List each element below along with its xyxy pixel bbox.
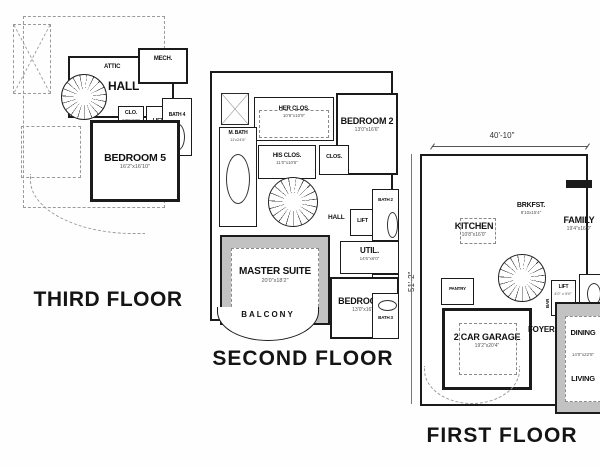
room-label: CLO. bbox=[119, 111, 143, 117]
cross-lines-icon bbox=[14, 25, 50, 93]
room-label: HER CLOS. bbox=[255, 106, 333, 112]
bath3-room: BATH 3 bbox=[372, 293, 399, 339]
room-label: HIS CLOS. bbox=[259, 153, 315, 159]
roof-deck-crossed-area bbox=[13, 24, 51, 94]
room-dims: 14'0"x22'8" bbox=[566, 353, 600, 358]
rug-outline-dashed: DINING 14'0"x22'8" LIVING bbox=[565, 316, 600, 402]
rug-outline-dashed: MASTER SUITE 20'0"x18'2" bbox=[231, 248, 319, 312]
spiral-staircase-icon bbox=[268, 177, 318, 227]
dimension-line bbox=[432, 146, 588, 147]
room-label: BEDROOM 2 bbox=[338, 117, 396, 126]
first-floor-plan: 40'-10" 51'-2" KITCHEN 10'8"x16'0" BRKFS… bbox=[404, 130, 600, 456]
spiral-staircase-icon bbox=[498, 254, 546, 302]
room-dims: 11'x24'6" bbox=[220, 138, 256, 142]
closet-room: CLOS. bbox=[319, 145, 349, 175]
room-label: DINING bbox=[566, 329, 600, 337]
floor-plan-sheet: ATTIC HALL MECH. CLO. 5'0"x6'0" LIFT BAT… bbox=[0, 0, 600, 466]
floor-title: FIRST FLOOR bbox=[404, 424, 600, 448]
room-label: LIVING bbox=[566, 375, 600, 383]
exterior-walls: HER CLOS. 10'6"x10'9" BEDROOM 2 13'0"x16… bbox=[210, 71, 393, 321]
floor-title: THIRD FLOOR bbox=[8, 288, 208, 312]
room-dims: 11'0"x10'6" bbox=[259, 161, 315, 166]
breakfast-room: BRKFST. 8'10x15'4" bbox=[508, 188, 554, 244]
room-label: CLOS. bbox=[320, 155, 348, 161]
dining-living-room: DINING 14'0"x22'8" LIVING bbox=[555, 302, 600, 414]
pantry-room: PANTRY bbox=[441, 278, 474, 305]
room-label: BRKFST. bbox=[508, 202, 554, 209]
room-label: BAR bbox=[546, 299, 551, 308]
floor-title: SECOND FLOOR bbox=[205, 347, 401, 371]
room-label: M. BATH bbox=[220, 131, 256, 136]
utility-room: UTIL. 14'6"x6'0" bbox=[340, 241, 399, 274]
room-label: LIFT bbox=[351, 219, 374, 225]
overall-width-dimension: 40'-10" bbox=[404, 132, 600, 140]
dimension-tick bbox=[585, 143, 590, 149]
roof-area-dashed bbox=[21, 126, 81, 178]
room-label: HALL bbox=[328, 215, 345, 222]
mech-room: MECH. bbox=[138, 48, 188, 84]
room-label: ATTIC bbox=[104, 64, 120, 70]
room-dims: 19'4"x16'0" bbox=[554, 227, 600, 232]
cross-lines-icon bbox=[222, 94, 248, 124]
room-label: BATH 4 bbox=[163, 113, 191, 118]
overall-depth-dimension: 51'-2" bbox=[408, 272, 416, 292]
room-dims: 10'6"x10'9" bbox=[255, 114, 333, 119]
room-label: LIFT bbox=[552, 285, 575, 290]
room-dims: 20'0"x18'2" bbox=[232, 279, 318, 285]
balcony-area: BALCONY bbox=[217, 307, 319, 341]
dimension-line-vertical bbox=[411, 154, 412, 404]
room-label: MASTER SUITE bbox=[232, 267, 318, 278]
room-dims: 13'0"x16'6" bbox=[338, 128, 396, 133]
room-label: UTIL. bbox=[341, 247, 398, 255]
room-label: BEDROOM 5 bbox=[93, 153, 177, 164]
room-label: HALL bbox=[108, 80, 139, 93]
shower-crossed-area bbox=[221, 93, 249, 125]
bedroom5-room: BEDROOM 5 16'2"x16'10" bbox=[90, 120, 180, 202]
room-label: BATH 3 bbox=[373, 316, 398, 321]
her-closet-room: HER CLOS. 10'6"x10'9" bbox=[254, 97, 334, 141]
room-label: MECH. bbox=[140, 56, 186, 62]
room-label: FAMILY bbox=[554, 216, 600, 225]
room-dims: 16'2"x16'10" bbox=[93, 165, 177, 171]
spiral-staircase-icon bbox=[61, 74, 107, 120]
room-label: BALCONY bbox=[218, 311, 318, 319]
room-dims: 4'0" x 5'0" bbox=[554, 292, 572, 296]
room-dims: 14'6"x6'0" bbox=[341, 257, 398, 262]
room-label: PANTRY bbox=[442, 287, 473, 292]
kitchen-island-dashed bbox=[460, 218, 496, 244]
family-room: FAMILY 19'4"x16'0" bbox=[554, 184, 600, 282]
master-bath-room: M. BATH 11'x24'6" bbox=[219, 127, 257, 227]
room-label: BATH 2 bbox=[373, 198, 398, 203]
bathtub-icon bbox=[226, 154, 250, 204]
bath2-room: BATH 2 bbox=[372, 189, 399, 241]
third-floor-plan: ATTIC HALL MECH. CLO. 5'0"x6'0" LIFT BAT… bbox=[8, 6, 208, 318]
room-dims: 8'10x15'4" bbox=[508, 211, 554, 216]
bathtub-icon bbox=[387, 212, 398, 238]
bathtub-icon bbox=[378, 300, 397, 311]
room-label: FOYER bbox=[528, 326, 555, 334]
his-closet-room: HIS CLOS. 11'0"x10'6" bbox=[258, 145, 316, 179]
second-floor-plan: HER CLOS. 10'6"x10'9" BEDROOM 2 13'0"x16… bbox=[205, 55, 401, 377]
